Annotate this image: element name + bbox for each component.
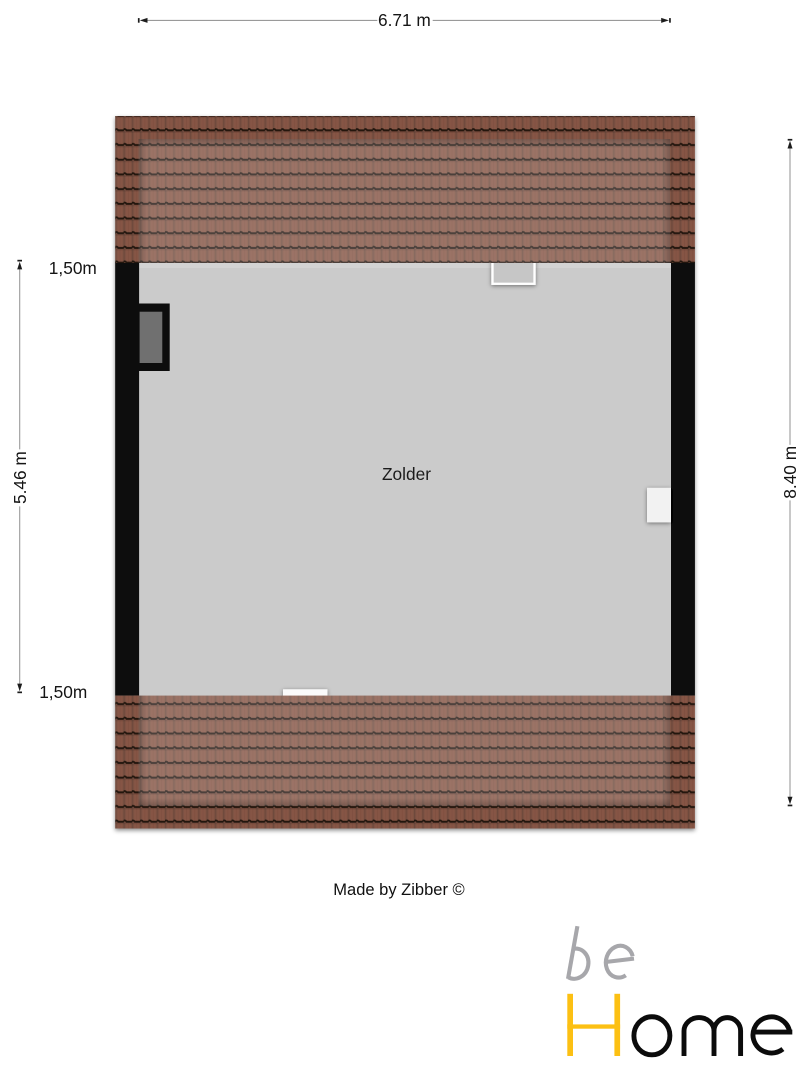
svg-text:1,50m: 1,50m — [49, 258, 97, 278]
svg-text:5.46 m: 5.46 m — [10, 451, 30, 504]
svg-text:Zolder: Zolder — [382, 464, 431, 484]
svg-text:Made by Zibber ©: Made by Zibber © — [333, 881, 464, 899]
svg-text:8.40 m: 8.40 m — [780, 446, 800, 499]
svg-text:6.71 m: 6.71 m — [378, 10, 431, 30]
svg-text:1,50m: 1,50m — [39, 682, 87, 702]
